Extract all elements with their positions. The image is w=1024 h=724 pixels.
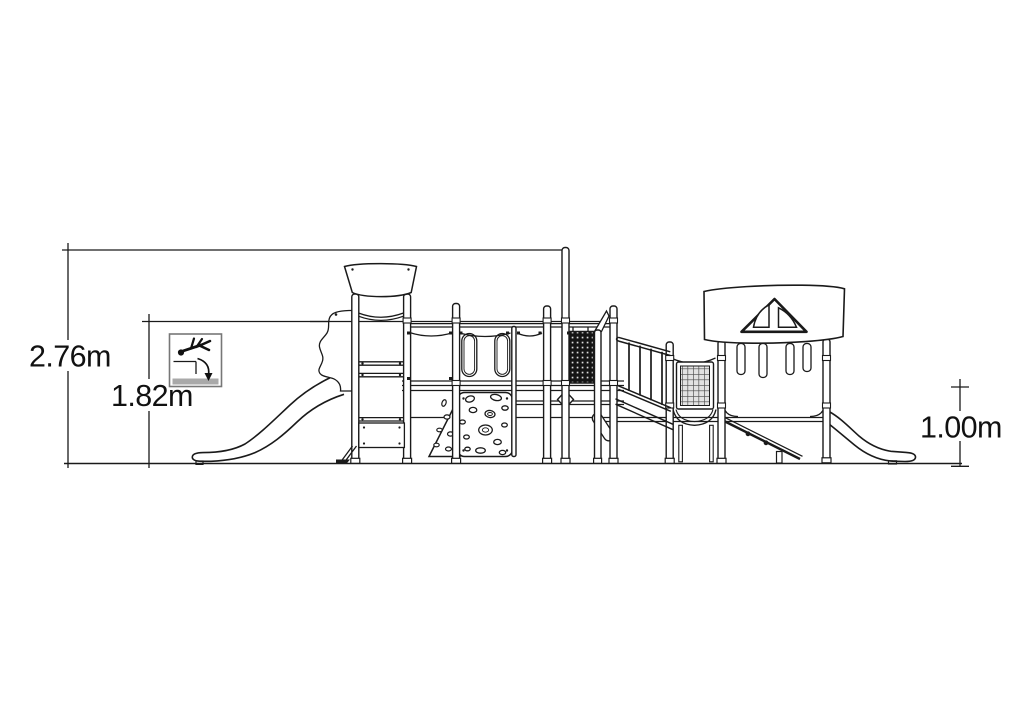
- panel-bolt: [335, 313, 338, 316]
- drawing-canvas: 2.76m 1.82m 1.00m: [0, 0, 1024, 724]
- climber-cleat: [746, 431, 751, 436]
- right-slide-body: [829, 412, 916, 462]
- tower-post-left: [352, 294, 359, 463]
- stair-railing: [616, 337, 674, 429]
- railing-bottom-rail: [618, 386, 671, 412]
- rock-climbing-wall: [458, 393, 513, 457]
- playground-elevation-drawing: 2.76m 1.82m 1.00m: [0, 0, 1024, 724]
- tower-ladder: [359, 362, 404, 421]
- climber-rail: [723, 421, 800, 460]
- access-climber: [723, 418, 803, 463]
- panel-mullion: [512, 327, 516, 457]
- right-platform-height-label: 1.00m: [920, 411, 1002, 445]
- top-rail: [409, 324, 610, 327]
- main-roof: [704, 285, 845, 343]
- fall-height-label: 1.82m: [111, 379, 193, 413]
- overall-height-label: 2.76m: [29, 340, 111, 374]
- light-mesh-panel: [677, 362, 714, 409]
- right-slide: [829, 412, 916, 465]
- dark-mesh-panel: [568, 327, 594, 383]
- tower-kick-panel: [359, 423, 405, 448]
- roof-hanging-slats: [737, 344, 811, 378]
- periscope-post: [595, 330, 602, 462]
- tall-pole: [562, 248, 569, 463]
- right-slide-foot: [889, 461, 897, 464]
- window-slot-panel: [462, 334, 510, 377]
- climber-cleat: [764, 440, 769, 445]
- tower-roof: [345, 264, 417, 297]
- climber-foot: [777, 452, 783, 464]
- slide-side-panel: [319, 311, 353, 392]
- climber-rail-2: [726, 418, 803, 457]
- post-feet: [351, 458, 831, 464]
- tower-hammock-curve: [359, 313, 404, 320]
- stair-stringer: [616, 399, 674, 430]
